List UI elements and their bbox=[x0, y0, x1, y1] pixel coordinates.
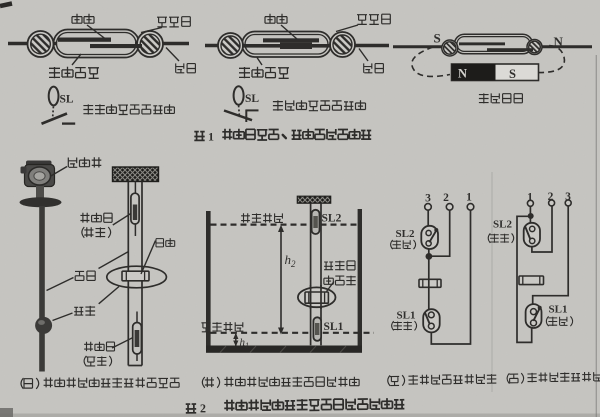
svg-text:SL: SL bbox=[60, 94, 74, 106]
svg-text:S: S bbox=[509, 67, 516, 81]
svg-text:1: 1 bbox=[208, 130, 214, 144]
svg-text:1: 1 bbox=[466, 192, 472, 204]
svg-text:SL2: SL2 bbox=[396, 228, 415, 240]
svg-text:SL1: SL1 bbox=[324, 321, 344, 333]
svg-text:SL2: SL2 bbox=[322, 213, 342, 225]
svg-text:SL1: SL1 bbox=[397, 310, 416, 322]
svg-text:SL2: SL2 bbox=[493, 219, 512, 231]
svg-text:3: 3 bbox=[425, 193, 431, 205]
svg-text:2: 2 bbox=[200, 401, 206, 415]
svg-text:S: S bbox=[434, 31, 441, 46]
svg-text:SL1: SL1 bbox=[549, 304, 568, 316]
svg-text:SL: SL bbox=[245, 93, 259, 105]
svg-text:N: N bbox=[458, 67, 467, 81]
svg-text:2: 2 bbox=[443, 192, 449, 204]
